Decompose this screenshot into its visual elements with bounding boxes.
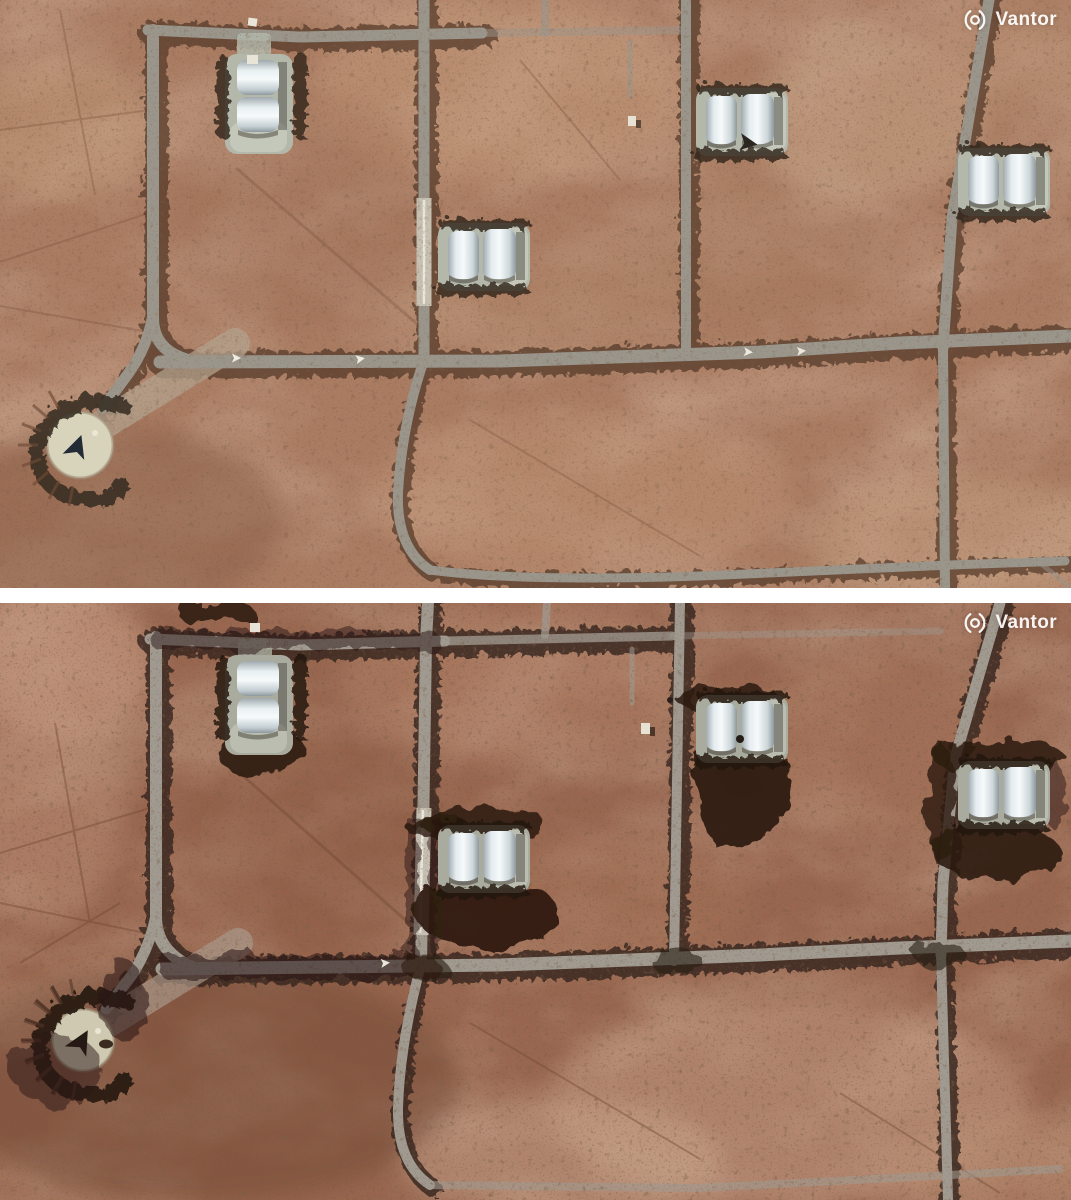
shelter-pair-northeast [690,688,788,765]
satellite-scene-after [0,603,1071,1200]
pad-glint [95,1028,101,1034]
satellite-scene-before [0,0,1071,588]
screenshot: Vantor [0,0,1071,1200]
sand-speckle-light [0,0,1071,588]
shelter-pair-center [432,216,530,293]
satellite-image-top: Vantor [0,0,1071,588]
pad-debris [99,1040,113,1049]
pad-glint [92,430,98,436]
shelter-pair-center [432,818,530,895]
shelter-pair-northwest [214,651,304,755]
shelter-pair-northwest [214,50,304,154]
shelter-pair-northeast [690,81,788,158]
satellite-image-bottom: Vantor [0,603,1071,1200]
shelter-pair-east [952,141,1050,218]
shelter-pair-east [952,754,1050,831]
image-divider [0,588,1071,603]
